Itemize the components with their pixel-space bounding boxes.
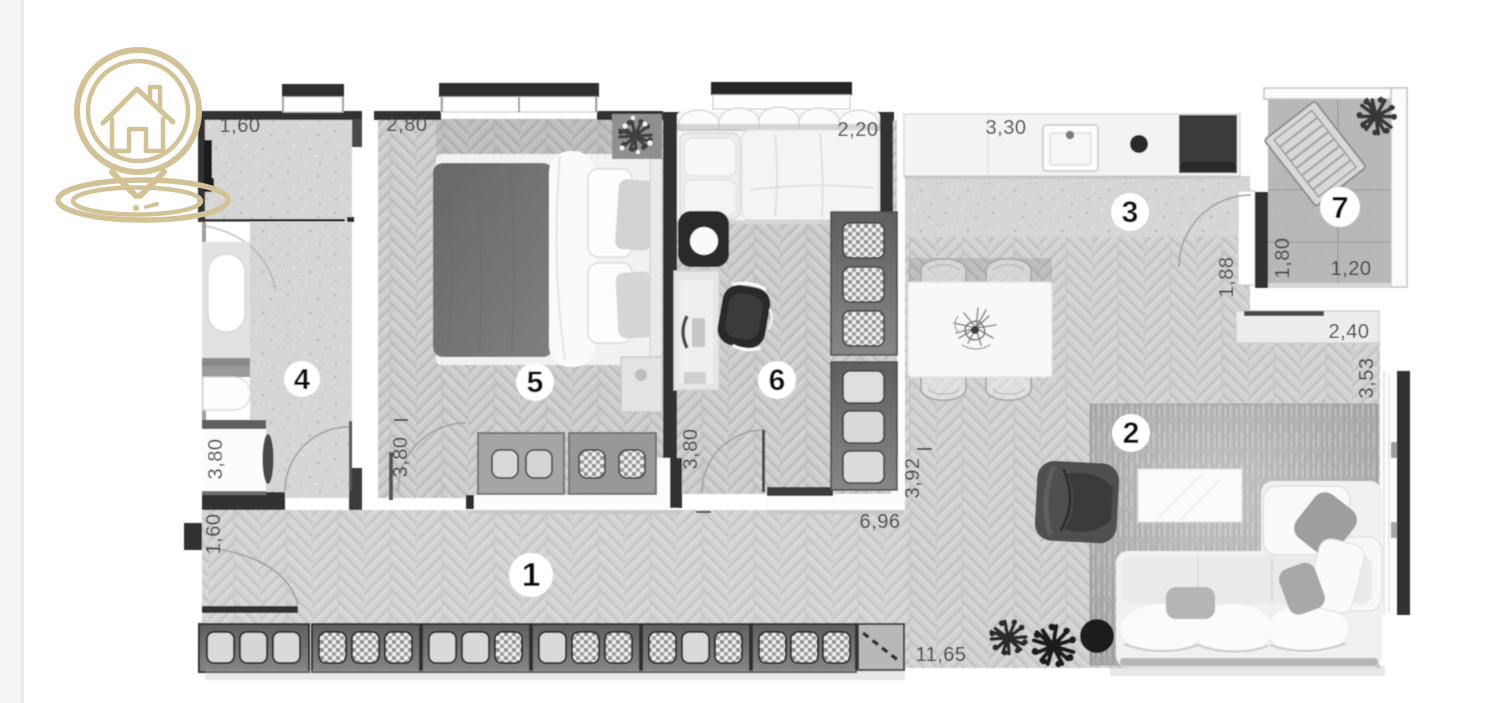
svg-text:1,20: 1,20 [1331, 258, 1372, 280]
svg-text:11,65: 11,65 [915, 644, 966, 666]
svg-text:1,60: 1,60 [220, 115, 261, 137]
svg-text:6: 6 [769, 364, 786, 397]
svg-text:3,53: 3,53 [1356, 358, 1378, 399]
svg-text:3,80: 3,80 [205, 439, 227, 480]
svg-text:1,80: 1,80 [1272, 238, 1294, 279]
svg-text:5: 5 [527, 366, 544, 399]
svg-text:6,96: 6,96 [860, 511, 901, 533]
svg-text:3,80: 3,80 [680, 429, 702, 470]
svg-text:1: 1 [522, 556, 540, 593]
svg-text:2,20: 2,20 [838, 119, 879, 141]
svg-text:4: 4 [294, 364, 310, 396]
svg-text:3,92: 3,92 [902, 458, 924, 499]
svg-text:3: 3 [1122, 196, 1139, 229]
svg-text:1,60: 1,60 [203, 514, 225, 555]
svg-text:2,80: 2,80 [387, 114, 428, 136]
svg-text:7: 7 [1331, 190, 1348, 225]
svg-text:3,30: 3,30 [986, 117, 1027, 139]
svg-text:2: 2 [1123, 417, 1140, 450]
svg-text:3,80: 3,80 [390, 437, 412, 478]
svg-text:1,88: 1,88 [1216, 257, 1238, 298]
svg-text:2,40: 2,40 [1329, 321, 1370, 343]
